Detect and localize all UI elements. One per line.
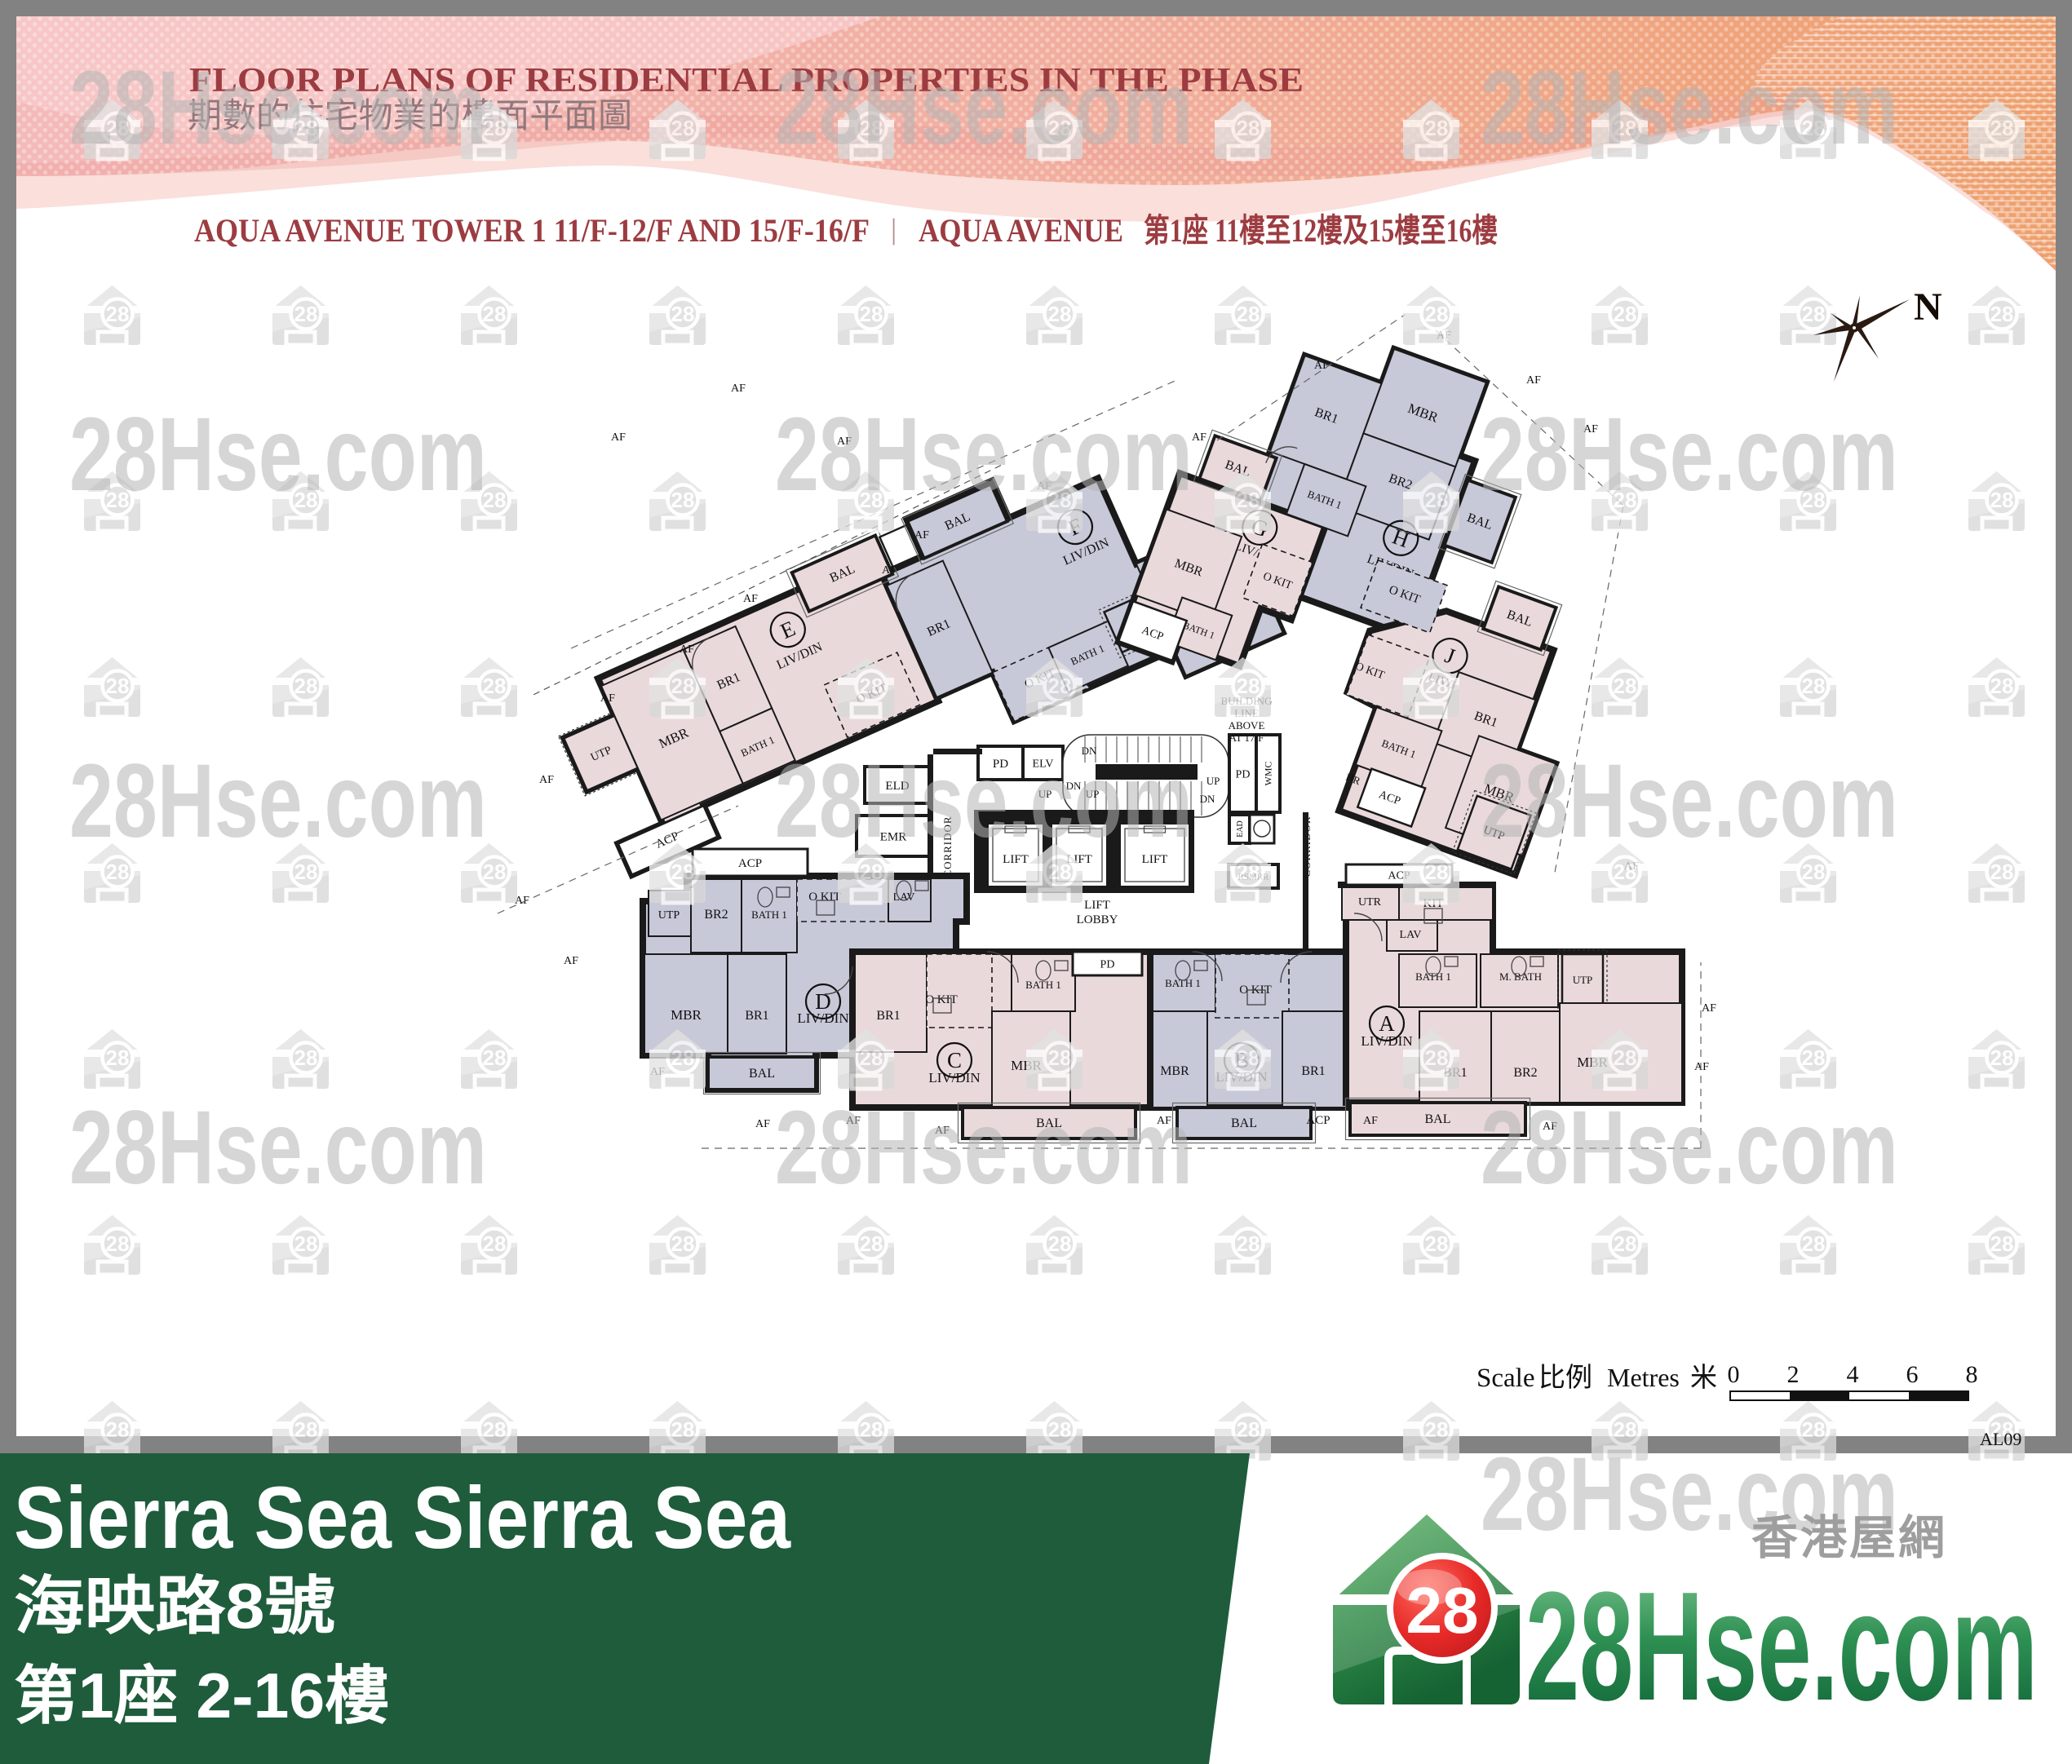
svg-text:A: A (1379, 1011, 1395, 1036)
svg-text:BR1: BR1 (1301, 1064, 1325, 1078)
svg-text:LOBBY: LOBBY (1077, 913, 1118, 926)
svg-text:ACP: ACP (738, 857, 762, 870)
svg-text:香港屋網: 香港屋網 (1751, 1512, 1947, 1564)
svg-text:LAV: LAV (1400, 929, 1422, 941)
svg-text:6: 6 (1906, 1361, 1919, 1388)
svg-text:LIV/DIN: LIV/DIN (928, 1070, 980, 1085)
svg-text:BAL: BAL (749, 1067, 775, 1081)
svg-text:比例: 比例 (1539, 1363, 1592, 1393)
svg-text:BR1: BR1 (745, 1009, 768, 1023)
svg-text:AQUA AVENUE: AQUA AVENUE (919, 212, 1123, 249)
svg-text:|: | (891, 213, 897, 245)
svg-text:Scale: Scale (1477, 1364, 1534, 1393)
svg-text:O KIT: O KIT (925, 993, 958, 1006)
svg-text:4: 4 (1847, 1361, 1859, 1388)
svg-text:UP: UP (1206, 775, 1220, 787)
svg-text:AQUA AVENUE TOWER 1 11/F-12/F: AQUA AVENUE TOWER 1 11/F-12/F AND 15/F-1… (194, 212, 870, 249)
svg-text:UTP: UTP (658, 909, 680, 922)
svg-text:AL09: AL09 (1980, 1429, 2021, 1449)
svg-text:C: C (947, 1048, 962, 1072)
svg-text:AF: AF (882, 564, 897, 577)
svg-text:N: N (1914, 285, 1942, 329)
svg-text:LIV/DIN: LIV/DIN (797, 1010, 848, 1026)
svg-text:8: 8 (1966, 1361, 1978, 1388)
svg-text:BR2: BR2 (1513, 1066, 1537, 1080)
svg-text:AF: AF (1702, 1002, 1716, 1015)
svg-text:AF: AF (1314, 360, 1329, 372)
svg-text:MBR: MBR (1160, 1064, 1189, 1078)
svg-text:第1座 2-16樓: 第1座 2-16樓 (14, 1660, 389, 1731)
svg-text:M. BATH: M. BATH (1499, 970, 1542, 983)
svg-text:BAL: BAL (1425, 1112, 1451, 1126)
svg-text:AF: AF (1694, 1061, 1709, 1073)
svg-text:WMC: WMC (1263, 762, 1274, 786)
svg-text:Metres: Metres (1607, 1363, 1680, 1392)
svg-text:AF: AF (731, 382, 746, 395)
svg-text:MBR: MBR (671, 1007, 702, 1023)
svg-text:AT 17/F: AT 17/F (1229, 732, 1264, 744)
svg-text:2: 2 (1787, 1361, 1800, 1388)
svg-text:AF: AF (539, 774, 554, 786)
svg-text:UTR: UTR (1358, 896, 1382, 909)
svg-text:AF: AF (743, 593, 758, 605)
svg-text:AF: AF (564, 955, 578, 967)
svg-text:ABOVE: ABOVE (1229, 719, 1265, 732)
svg-text:BR2: BR2 (704, 908, 728, 922)
svg-text:BR1: BR1 (876, 1009, 900, 1023)
svg-text:米: 米 (1690, 1363, 1717, 1393)
svg-text:0: 0 (1728, 1361, 1740, 1388)
svg-text:BATH 1: BATH 1 (1165, 977, 1201, 989)
svg-text:PD: PD (1236, 768, 1251, 780)
svg-text:AF: AF (914, 529, 929, 542)
svg-text:28Hse.com: 28Hse.com (1525, 1560, 2038, 1733)
svg-text:DN: DN (1200, 793, 1215, 805)
svg-text:PD: PD (1100, 958, 1115, 970)
svg-text:AF: AF (600, 692, 615, 705)
svg-text:海映路8號: 海映路8號 (14, 1570, 335, 1642)
svg-text:AF: AF (1192, 431, 1206, 444)
svg-text:UTP: UTP (1573, 974, 1593, 986)
svg-text:AF: AF (680, 643, 694, 656)
svg-text:AF: AF (611, 431, 626, 444)
svg-text:Sierra Sea Sierra Sea: Sierra Sea Sierra Sea (14, 1468, 791, 1567)
svg-text:LIV/DIN: LIV/DIN (1361, 1033, 1412, 1049)
svg-text:LIFT: LIFT (1084, 899, 1110, 912)
svg-text:ACP: ACP (1306, 1114, 1330, 1127)
svg-text:第1座 11樓至12樓及15樓至16樓: 第1座 11樓至12樓及15樓至16樓 (1144, 212, 1498, 249)
svg-text:LAV: LAV (893, 891, 915, 904)
svg-text:AF: AF (1526, 374, 1541, 387)
svg-text:28: 28 (1406, 1574, 1479, 1647)
svg-text:EAD: EAD (1236, 820, 1245, 838)
svg-text:AF: AF (1363, 1115, 1378, 1127)
svg-text:BATH 1: BATH 1 (751, 909, 787, 921)
svg-text:BAL: BAL (1231, 1116, 1257, 1130)
svg-text:AF: AF (755, 1118, 770, 1130)
svg-text:O KIT: O KIT (808, 891, 841, 904)
